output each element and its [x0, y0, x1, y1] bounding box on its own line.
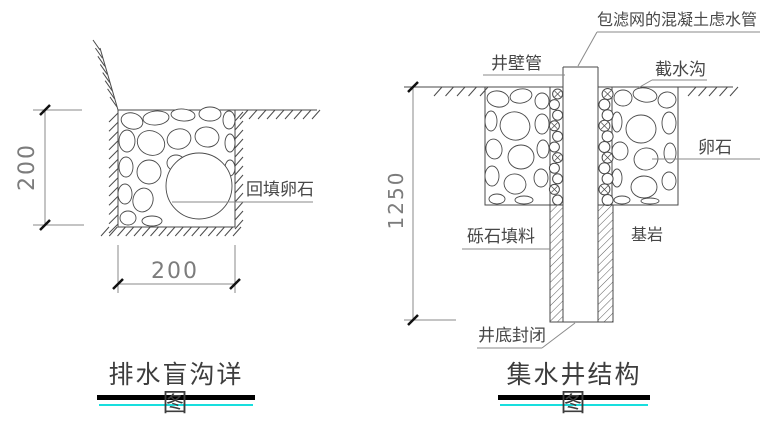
right-wall-hatching	[235, 112, 243, 229]
bedrock-label: 基岩	[631, 226, 663, 244]
pebble-fill	[118, 107, 235, 226]
left-wall-hatching	[109, 113, 118, 233]
gravel-column-left	[549, 89, 562, 205]
drawing-linework	[0, 0, 760, 422]
filter-pipe-label: 包滤网的混凝土虑水管	[597, 11, 757, 29]
collecting-well-section	[404, 32, 760, 406]
pebble-fill-right	[612, 86, 677, 204]
left-drawing-title: 排水盲沟详图	[97, 361, 255, 416]
slope-hatching	[93, 40, 117, 107]
right-drawing-title: 集水井结构图	[498, 361, 650, 416]
well-wall-left	[550, 205, 563, 322]
left-depth-dimension: 200	[17, 132, 41, 202]
large-pebble	[166, 153, 232, 219]
backfill-pebble-label: 回填卵石	[246, 181, 314, 201]
right-ground-hatching	[240, 110, 320, 119]
technical-drawing-sheet: 200 200 回填卵石 排水盲沟详图 1250 包滤网的混凝土虑水管 井壁管 …	[0, 0, 760, 422]
ground-hatching-left	[434, 87, 488, 96]
well-wall-right	[598, 205, 613, 322]
trench-bottom-hatching	[101, 227, 241, 236]
blind-ditch-section	[33, 40, 320, 406]
ground-hatching-right	[688, 87, 738, 96]
filter-pipe	[563, 67, 598, 322]
slope-line	[100, 48, 118, 110]
well-wall-pipe-label: 井壁管	[491, 55, 542, 75]
pebble-fill-left	[484, 87, 549, 204]
pebble-label: 卵石	[698, 139, 732, 159]
well-depth-dimension: 1250	[386, 160, 410, 240]
gravel-fill-label: 砾石填料	[467, 228, 535, 248]
right-dimensions	[404, 87, 456, 320]
well-bottom-sealed-label: 井底封闭	[478, 327, 546, 347]
gravel-column-right	[599, 89, 613, 206]
left-width-dimension: 200	[148, 261, 202, 283]
intercepting-ditch-label: 截水沟	[655, 61, 706, 81]
